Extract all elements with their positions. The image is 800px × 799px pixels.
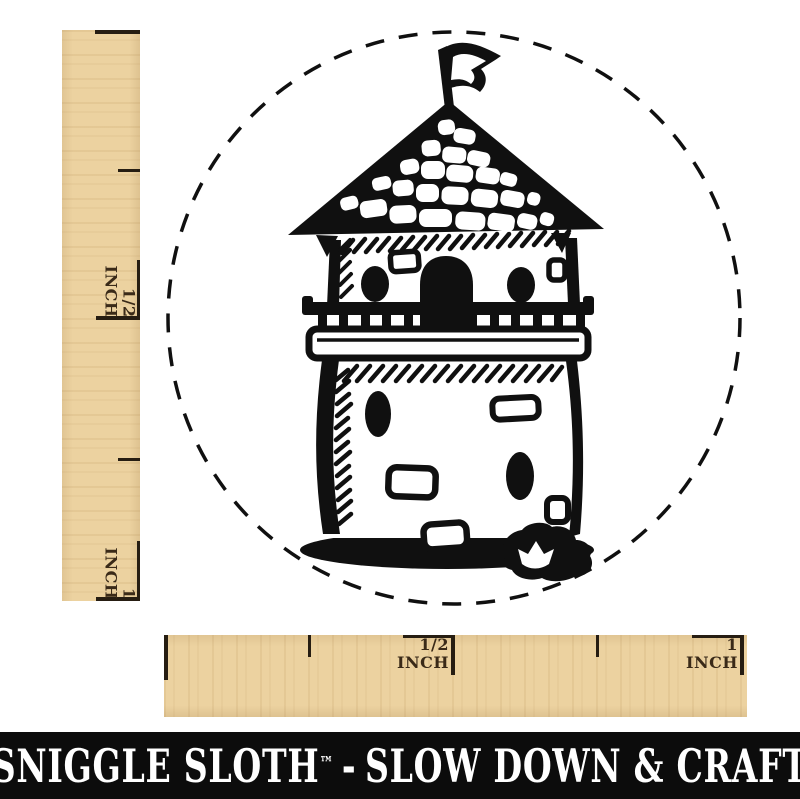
turret-door-arch <box>420 256 473 331</box>
horizontal-ruler-label-one-inch: 1 INCH <box>678 636 738 672</box>
brand-name: SNIGGLE SLOTH <box>0 739 320 793</box>
horizontal-ruler-tick-one-inch <box>740 635 744 675</box>
turret-window <box>507 267 535 303</box>
ruler-label-unit: INCH <box>389 654 449 672</box>
lower-tower <box>316 358 583 550</box>
flag <box>438 43 501 109</box>
ruler-label-fraction: 1 <box>678 636 738 654</box>
balcony-ledge <box>309 329 588 358</box>
horizontal-ruler: 1/2 INCH 1 INCH <box>164 635 747 717</box>
horizontal-ruler-label-half-inch: 1/2 INCH <box>389 636 449 672</box>
banner-separator: - <box>342 739 356 793</box>
brand-banner-text: SNIGGLE SLOTH™-SLOW DOWN & CRAFT <box>0 743 800 789</box>
castle-tower-stamp-illustration <box>0 0 800 630</box>
eave-hatching <box>342 231 569 253</box>
brand-banner: SNIGGLE SLOTH™-SLOW DOWN & CRAFT <box>0 732 800 799</box>
arrow-slit-window <box>365 391 391 437</box>
horizontal-ruler-tick-half-inch <box>451 635 455 675</box>
product-image: 1/2 INCH 1 INCH <box>0 0 800 799</box>
brand-tagline: SLOW DOWN & CRAFT <box>365 739 800 793</box>
turret-bricks <box>390 251 565 280</box>
turret-window <box>361 266 389 302</box>
ruler-label-fraction: 1/2 <box>389 636 449 654</box>
horizontal-ruler-tick-three-quarter <box>596 635 599 657</box>
trademark-symbol: ™ <box>320 752 334 775</box>
conical-roof <box>288 101 604 257</box>
ruler-label-unit: INCH <box>678 654 738 672</box>
horizontal-ruler-tick-zero <box>164 635 168 680</box>
arrow-slit-window <box>506 452 534 500</box>
horizontal-ruler-tick-quarter <box>308 635 311 657</box>
